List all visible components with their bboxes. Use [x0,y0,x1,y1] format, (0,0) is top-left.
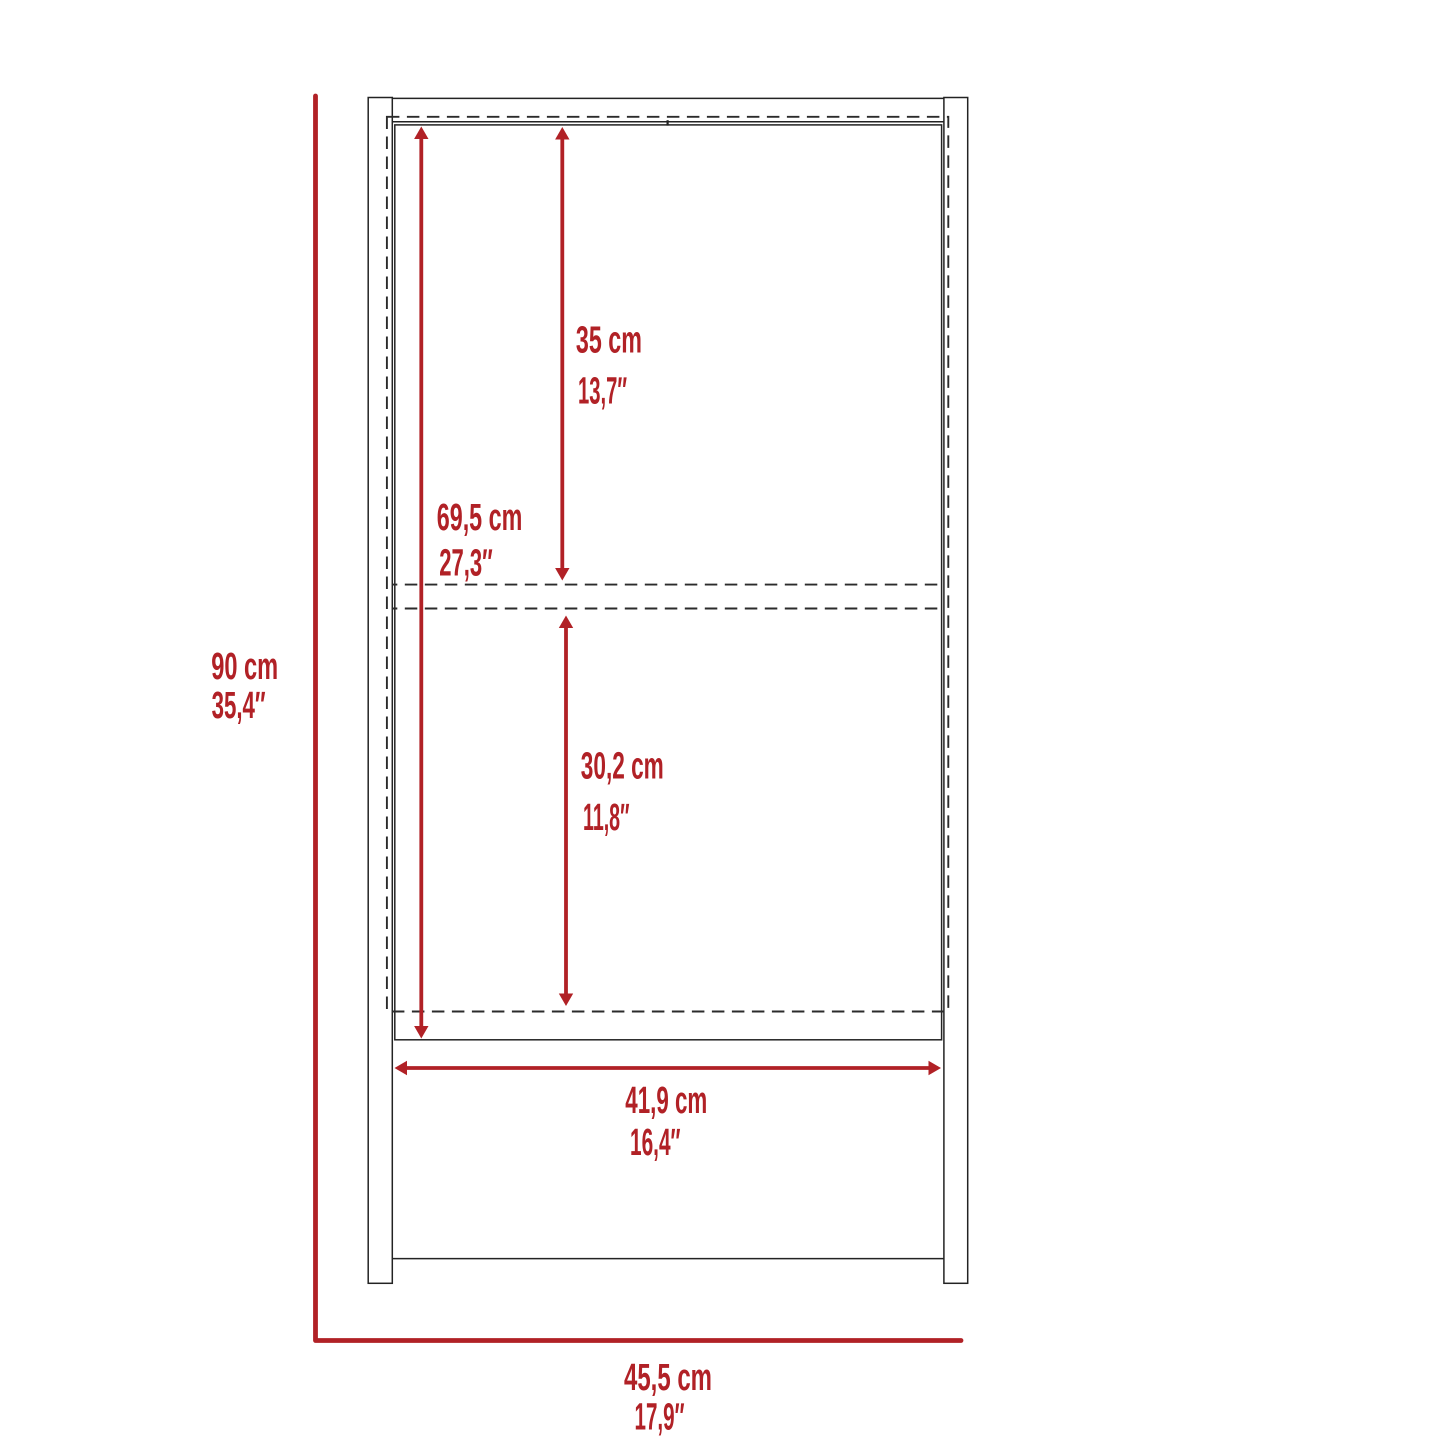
svg-text:11,8″: 11,8″ [583,797,630,839]
svg-text:41,9 cm: 41,9 cm [625,1080,707,1122]
svg-text:69,5 cm: 69,5 cm [437,497,523,539]
svg-text:13,7″: 13,7″ [578,371,627,413]
svg-text:35,4″: 35,4″ [212,685,266,727]
svg-text:17,9″: 17,9″ [635,1397,685,1439]
svg-text:45,5 cm: 45,5 cm [624,1357,712,1399]
svg-text:30,2 cm: 30,2 cm [581,746,664,788]
svg-text:35 cm: 35 cm [576,319,642,361]
svg-text:90 cm: 90 cm [211,646,278,688]
svg-text:27,3″: 27,3″ [439,543,493,585]
svg-text:16,4″: 16,4″ [630,1122,681,1164]
